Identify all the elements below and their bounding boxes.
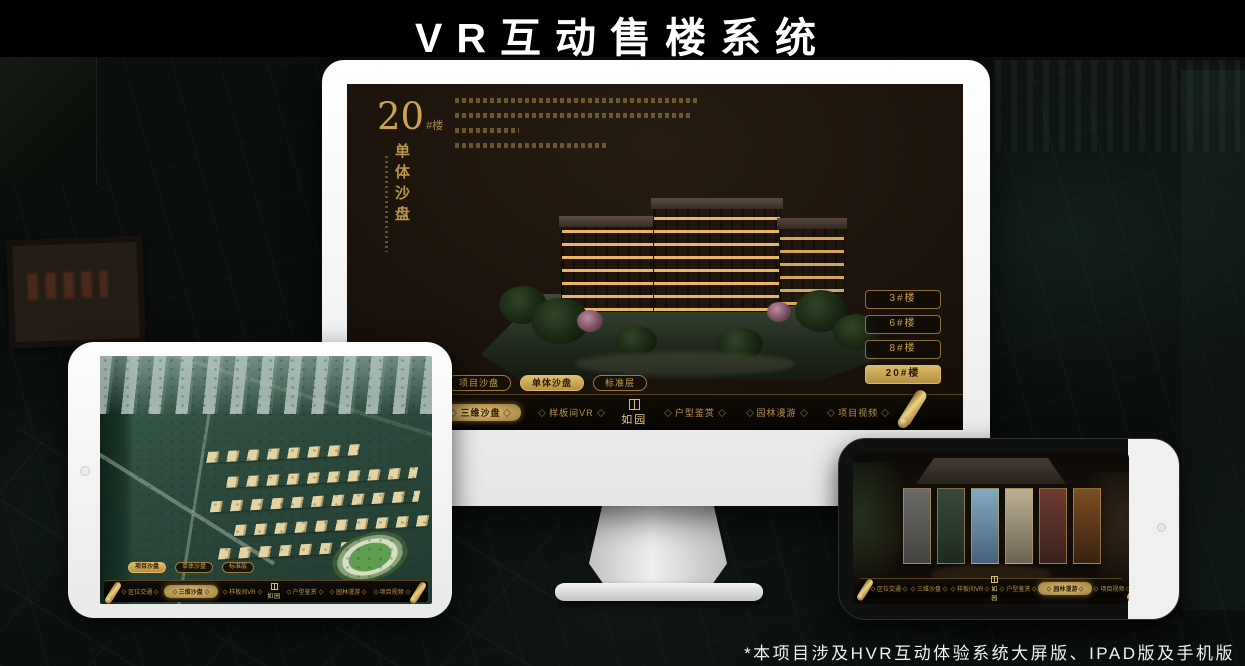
tab-project-sandbox[interactable]: 项目沙盘 bbox=[128, 562, 166, 573]
building-number: 20 bbox=[377, 95, 424, 138]
gallery-panel[interactable] bbox=[1005, 488, 1033, 564]
nav-item-3d-sandbox[interactable]: 三维沙盘 bbox=[909, 584, 949, 593]
section-heading: 20#楼 单体沙盘 bbox=[377, 98, 443, 227]
nav-item-project-video[interactable]: 项目视频 bbox=[372, 587, 412, 596]
nav-item-garden-roam[interactable]: 园林漫游 bbox=[743, 406, 811, 419]
background-plaque bbox=[6, 236, 146, 349]
brand-logo[interactable]: 如园 bbox=[991, 576, 998, 602]
gallery-panel[interactable] bbox=[903, 488, 931, 564]
nav-item-floorplan-gallery[interactable]: 户型鉴赏 bbox=[661, 406, 729, 419]
building-block bbox=[653, 208, 781, 312]
page-title: VR互动售楼系统 bbox=[0, 4, 1245, 64]
ipad-sandbox-tabs: 项目沙盘 单体沙盘 标准层 bbox=[128, 562, 254, 573]
ipad-bottom-nav: 区位交通 三维沙盘 样板间VR 如园 户型鉴赏 园林漫游 项目视频 bbox=[104, 580, 428, 602]
tab-single-sandbox[interactable]: 单体沙盘 bbox=[520, 375, 584, 391]
ipad-camera-icon bbox=[80, 466, 90, 476]
tree bbox=[615, 326, 657, 356]
phone-frame: 区位交通 三维沙盘 样板间VR 如园 户型鉴赏 园林漫游 项目视频 bbox=[838, 438, 1180, 620]
vertical-english-caption bbox=[385, 156, 388, 252]
seal-icon bbox=[991, 576, 998, 583]
footnote-text: *本项目涉及HVR互动体验系统大屏版、IPAD版及手机版 bbox=[744, 639, 1235, 664]
monitor-stand bbox=[589, 503, 727, 587]
nav-item-location-traffic[interactable]: 区位交通 bbox=[869, 584, 909, 593]
floor-button-group: 3#楼 6#楼 8#楼 20#楼 bbox=[865, 290, 941, 384]
building-number-suffix: #楼 bbox=[426, 120, 443, 132]
floor-button-8[interactable]: 8#楼 bbox=[865, 340, 941, 359]
description-line bbox=[455, 113, 693, 118]
gallery-panel[interactable] bbox=[971, 488, 999, 564]
nav-item-garden-roam[interactable]: 园林漫游 bbox=[328, 587, 368, 596]
nav-item-project-video[interactable]: 项目视频 bbox=[1092, 584, 1129, 593]
blossom-tree bbox=[577, 310, 603, 332]
floor-button-3[interactable]: 3#楼 bbox=[865, 290, 941, 309]
phone-bottom-nav: 区位交通 三维沙盘 样板间VR 如园 户型鉴赏 园林漫游 项目视频 bbox=[859, 578, 1123, 598]
nav-item-garden-roam[interactable]: 园林漫游 bbox=[1038, 582, 1092, 595]
nav-item-project-video[interactable]: 项目视频 bbox=[824, 406, 892, 419]
seal-icon bbox=[629, 399, 640, 410]
floor-button-6[interactable]: 6#楼 bbox=[865, 315, 941, 334]
tab-standard-floor[interactable]: 标准层 bbox=[593, 375, 647, 391]
building-render bbox=[465, 148, 895, 384]
monitor-base bbox=[555, 583, 763, 601]
floor-button-20[interactable]: 20#楼 bbox=[865, 365, 941, 384]
nav-item-showroom-vr[interactable]: 样板间VR bbox=[221, 587, 263, 596]
poster-canvas: VR互动售楼系统 20#楼 单体沙盘 bbox=[0, 0, 1245, 666]
background-photo-block bbox=[0, 57, 97, 185]
interior-foliage bbox=[853, 462, 909, 592]
gallery-panel[interactable] bbox=[1073, 488, 1101, 564]
blossom-tree bbox=[767, 302, 791, 322]
background-city-block bbox=[995, 60, 1240, 152]
sandbox-tabs: 项目沙盘 单体沙盘 标准层 bbox=[447, 375, 647, 391]
brand-logo-text: 如园 bbox=[621, 411, 647, 427]
path-glow bbox=[575, 352, 795, 376]
section-subtitle-vertical: 单体沙盘 bbox=[391, 143, 412, 227]
nav-item-3d-sandbox[interactable]: 三维沙盘 bbox=[164, 585, 218, 598]
nav-item-floorplan-gallery[interactable]: 户型鉴赏 bbox=[285, 587, 325, 596]
nav-item-showroom-vr[interactable]: 样板间VR bbox=[949, 584, 991, 593]
gallery-panel[interactable] bbox=[937, 488, 965, 564]
phone-app-screen: 区位交通 三维沙盘 样板间VR 如园 户型鉴赏 园林漫游 项目视频 bbox=[853, 452, 1129, 604]
scroll-menu-icon[interactable] bbox=[410, 580, 428, 602]
tab-single-sandbox[interactable]: 单体沙盘 bbox=[175, 562, 213, 573]
brand-logo[interactable]: 如园 bbox=[267, 583, 281, 600]
brand-logo-text: 如园 bbox=[267, 591, 281, 600]
tab-standard-floor[interactable]: 标准层 bbox=[222, 562, 254, 573]
description-line bbox=[455, 128, 519, 133]
interior-pavilion bbox=[916, 458, 1066, 484]
gallery-panel[interactable] bbox=[1039, 488, 1067, 564]
brand-logo-text: 如园 bbox=[991, 584, 998, 602]
ipad-app-screen: 项目沙盘 单体沙盘 标准层 区位交通 三维沙盘 样板间VR 如园 户型鉴赏 园林… bbox=[100, 356, 432, 604]
description-line bbox=[455, 98, 699, 103]
building-block bbox=[561, 226, 655, 312]
ipad-frame: 项目沙盘 单体沙盘 标准层 区位交通 三维沙盘 样板间VR 如园 户型鉴赏 园林… bbox=[68, 342, 452, 618]
gallery-panels bbox=[903, 488, 1101, 564]
nav-item-location-traffic[interactable]: 区位交通 bbox=[120, 587, 160, 596]
nav-item-showroom-vr[interactable]: 样板间VR bbox=[535, 406, 608, 419]
tab-project-sandbox[interactable]: 项目沙盘 bbox=[447, 375, 511, 391]
brand-logo[interactable]: 如园 bbox=[621, 399, 647, 427]
seal-icon bbox=[271, 583, 278, 590]
nav-item-floorplan-gallery[interactable]: 户型鉴赏 bbox=[998, 584, 1038, 593]
phone-camera-icon bbox=[1157, 523, 1166, 532]
